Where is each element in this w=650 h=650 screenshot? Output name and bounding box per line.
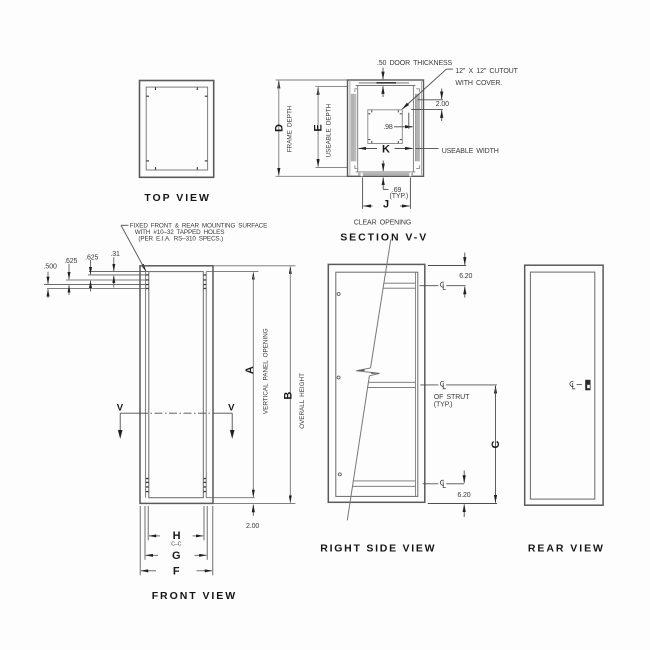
svg-text:RIGHT SIDE VIEW: RIGHT SIDE VIEW	[320, 542, 436, 554]
svg-text:.98: .98	[383, 124, 393, 131]
svg-text:.625: .625	[64, 258, 77, 265]
svg-text:REAR VIEW: REAR VIEW	[528, 542, 605, 554]
svg-text:CLEAR OPENING: CLEAR OPENING	[354, 219, 411, 226]
svg-text:USEABLE WIDTH: USEABLE WIDTH	[442, 148, 499, 155]
svg-text:.625: .625	[85, 254, 98, 261]
svg-text:C–C: C–C	[171, 541, 181, 547]
svg-text:SECTION V-V: SECTION V-V	[340, 232, 428, 244]
svg-text:FRONT VIEW: FRONT VIEW	[152, 590, 237, 602]
svg-text:2.00: 2.00	[436, 101, 449, 108]
svg-text:B: B	[282, 392, 294, 400]
svg-text:.31: .31	[110, 251, 120, 258]
svg-text:H: H	[173, 530, 181, 542]
svg-text:(PER E.I.A. RS–310 SPECS.): (PER E.I.A. RS–310 SPECS.)	[138, 236, 223, 243]
svg-text:.50 DOOR THICKNESS: .50 DOOR THICKNESS	[377, 60, 453, 67]
svg-text:C: C	[490, 440, 502, 448]
svg-text:E: E	[312, 124, 324, 131]
svg-text:WITH COVER.: WITH COVER.	[455, 80, 502, 87]
svg-text:.500: .500	[44, 263, 57, 270]
svg-text:FRAME DEPTH: FRAME DEPTH	[287, 105, 294, 152]
svg-text:V: V	[117, 403, 124, 414]
svg-text:F: F	[173, 565, 180, 577]
svg-text:OF STRUT: OF STRUT	[434, 394, 470, 401]
svg-text:K: K	[382, 144, 390, 156]
svg-text:12" X 12" CUTOUT: 12" X 12" CUTOUT	[455, 68, 518, 75]
svg-text:OVERALL HEIGHT: OVERALL HEIGHT	[299, 373, 306, 429]
svg-text:6.20: 6.20	[459, 273, 472, 280]
svg-text:A: A	[244, 366, 256, 374]
svg-text:2.00: 2.00	[246, 523, 259, 530]
svg-text:6.20: 6.20	[457, 492, 470, 499]
svg-text:USEABLE DEPTH: USEABLE DEPTH	[325, 103, 332, 157]
svg-text:TOP VIEW: TOP VIEW	[144, 192, 211, 204]
svg-text:(TYP.): (TYP.)	[434, 401, 453, 408]
svg-text:G: G	[172, 550, 181, 562]
svg-text:(TYP.): (TYP.)	[389, 193, 408, 200]
svg-text:D: D	[274, 124, 286, 132]
svg-text:J: J	[383, 199, 389, 211]
svg-text:VERTICAL PANEL OPENING: VERTICAL PANEL OPENING	[262, 328, 269, 414]
svg-text:V: V	[228, 403, 235, 414]
